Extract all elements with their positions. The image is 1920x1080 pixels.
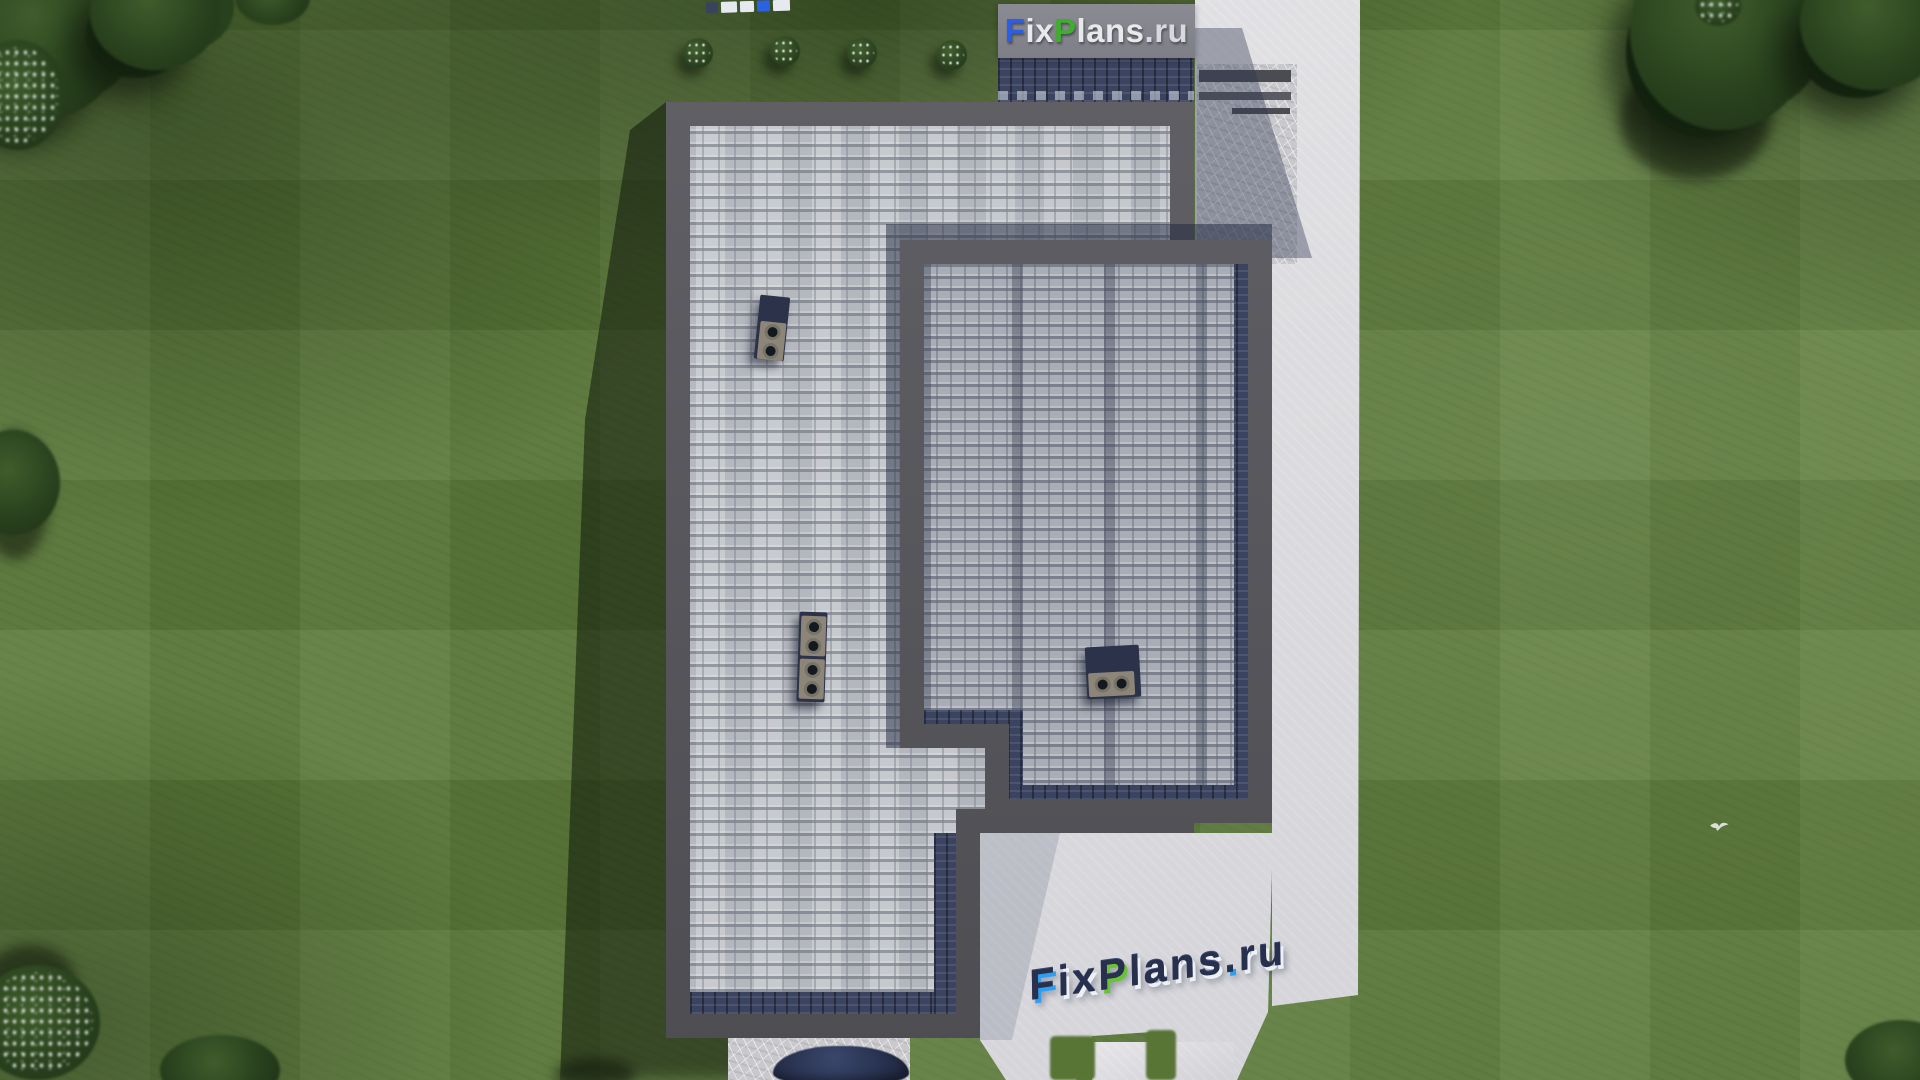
logo-block — [740, 1, 754, 12]
flowering-bush — [770, 36, 800, 66]
logo-block — [721, 1, 737, 13]
vent-ring — [805, 637, 822, 654]
logo3d-letter: ix — [1057, 952, 1098, 1005]
vent-ring — [1113, 675, 1130, 692]
watermark-letter: F — [1005, 12, 1026, 49]
logo-block — [757, 0, 770, 11]
flowering-bush — [683, 38, 713, 68]
vent-ring — [803, 680, 820, 697]
flowering-bush — [937, 40, 967, 70]
vent-plate — [800, 616, 826, 657]
vent-ring — [762, 342, 780, 360]
scene-root: FixPlans.ru FixPlans.ru — [0, 0, 1920, 1080]
upper-wall-shingle-strip — [998, 56, 1194, 102]
lower-roof-eave-band — [934, 833, 956, 1014]
flowering-bush — [847, 38, 877, 68]
watermark-letter: .ru — [1145, 12, 1189, 49]
logo3d-letter: P — [1098, 948, 1130, 1000]
shingle-highlight-row — [998, 91, 1194, 100]
vent-ring — [1094, 676, 1111, 693]
vent-plate — [1088, 671, 1135, 697]
vent-plate — [757, 321, 787, 362]
lower-roof-eave-band — [690, 992, 956, 1014]
vent-ring — [764, 323, 782, 341]
chimney-vent-stack — [796, 612, 827, 703]
vent-ring — [805, 618, 822, 635]
chimney-vent-stack — [1085, 645, 1142, 700]
vent-plate — [799, 659, 825, 700]
watermark-top-text: FixPlans.ru — [1005, 12, 1188, 50]
logo3d-letter: ru — [1238, 926, 1286, 980]
logo-block — [706, 2, 718, 13]
watermark-plate: FixPlans.ru — [998, 4, 1195, 58]
vent-ring — [804, 661, 821, 678]
grass-patch — [1146, 1030, 1176, 1080]
watermark-letter: ix — [1025, 12, 1054, 49]
logo3d-letter: F — [1029, 958, 1058, 1009]
logo3d-letter: . — [1224, 932, 1239, 981]
watermark-letter: lans — [1077, 12, 1145, 49]
watermark-letter: P — [1054, 12, 1077, 49]
logo-block — [773, 0, 790, 11]
grass-patch — [1050, 1036, 1095, 1080]
